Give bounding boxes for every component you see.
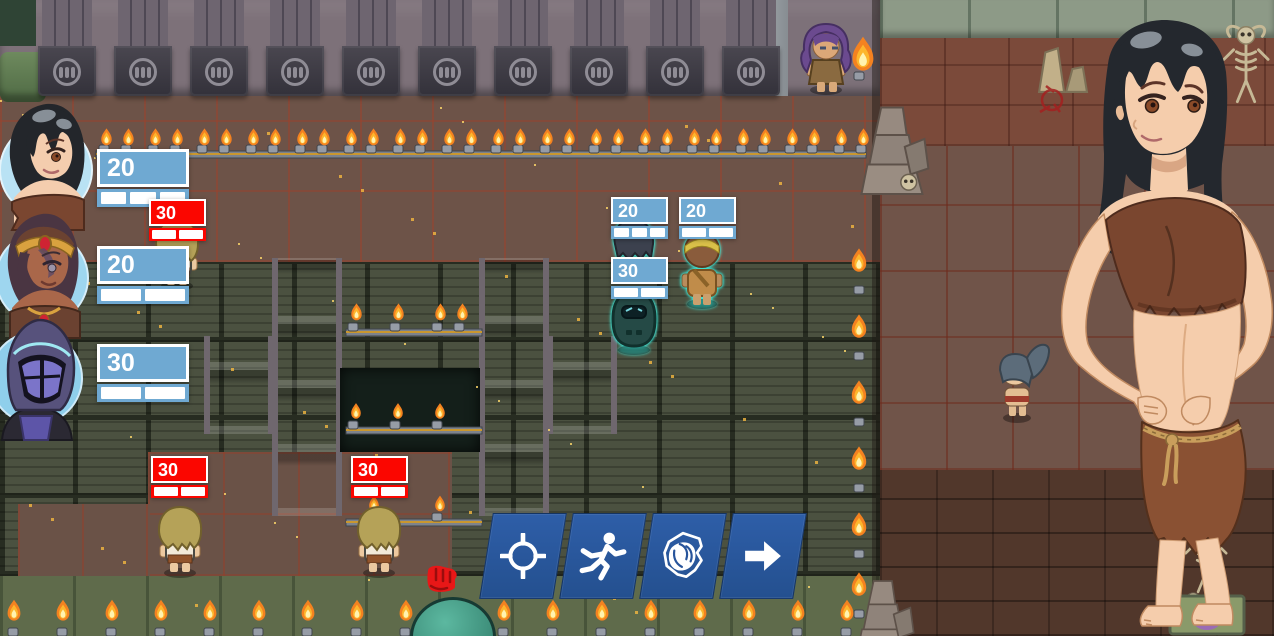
wall-panel: [570, 46, 628, 96]
action-button-end-turn[interactable]: [719, 513, 807, 599]
fist-emblem-icon: [661, 58, 689, 86]
action-pips: [611, 286, 668, 299]
hp-value: 20: [107, 253, 135, 278]
fist-emblem-icon: [737, 58, 765, 86]
wall-panel: [722, 46, 780, 96]
action-pips: [97, 384, 189, 402]
game-viewport: 20 20 30 20 20 30 30 30 30: [0, 0, 1274, 636]
crosshair-icon: [487, 514, 559, 598]
action-button-move[interactable]: [559, 513, 647, 599]
wall-panel: [418, 46, 476, 96]
run-icon: [567, 514, 639, 598]
stone-pillar: [479, 258, 549, 516]
stone-pillar: [204, 336, 274, 434]
hp-plate-ally: 20: [611, 197, 668, 239]
wall-panel: [266, 46, 324, 96]
hp-plate-ally: 30: [611, 257, 668, 299]
fist-emblem-icon: [433, 58, 461, 86]
fist-emblem-icon: [129, 58, 157, 86]
wall-panel: [38, 46, 96, 96]
hp-plate-enemy: 30: [351, 456, 408, 498]
stone-pillar: [547, 336, 617, 434]
fist-emblem-icon: [357, 58, 385, 86]
action-pips: [151, 485, 208, 498]
wall-panel: [646, 46, 704, 96]
hp-value: 30: [107, 351, 135, 376]
stone-pillar: [272, 258, 342, 516]
hp-value: 20: [107, 156, 135, 181]
unit-purple-haired[interactable]: [799, 22, 853, 96]
wall-panel: [494, 46, 552, 96]
fist-emblem-icon: [205, 58, 233, 86]
hp-value: 30: [156, 204, 176, 222]
fist-icon: [422, 563, 460, 597]
hero-character-art: [1046, 14, 1274, 636]
hp-value: 20: [618, 202, 638, 220]
action-pips: [611, 226, 668, 239]
hp-value: 20: [686, 202, 706, 220]
hp-plate-ally: 30: [97, 344, 189, 402]
wall-panel: [114, 46, 172, 96]
hp-value: 30: [618, 262, 638, 280]
fist-shield-icon: [647, 514, 719, 598]
action-pips: [97, 286, 189, 304]
wall-panel: [190, 46, 248, 96]
action-pips: [149, 228, 206, 241]
hp-value: 30: [158, 461, 178, 479]
wall-seam: [872, 0, 880, 636]
action-button-aim[interactable]: [479, 513, 567, 599]
action-button-strike[interactable]: [639, 513, 727, 599]
fist-emblem-icon: [281, 58, 309, 86]
corner-tile: [0, 0, 36, 46]
hp-plate-enemy: 30: [151, 456, 208, 498]
hp-plate-ally: 20: [97, 246, 189, 304]
hp-plate-enemy: 30: [149, 199, 206, 241]
fist-emblem-icon: [585, 58, 613, 86]
brown-path-tiles: [18, 504, 150, 576]
action-pips: [679, 226, 736, 239]
unit-raider-enemy[interactable]: [353, 505, 405, 579]
arrow-right-icon: [727, 514, 799, 598]
action-pips: [351, 485, 408, 498]
portrait-armored-mech[interactable]: [0, 312, 90, 442]
fist-emblem-icon: [509, 58, 537, 86]
hp-plate-ally: 20: [679, 197, 736, 239]
wall-panel: [342, 46, 400, 96]
hp-value: 30: [358, 461, 378, 479]
fire-pit: [340, 368, 480, 452]
unit-raider-enemy[interactable]: [154, 505, 206, 579]
fist-emblem-icon: [53, 58, 81, 86]
unit-ponytail-girl[interactable]: [993, 340, 1051, 424]
